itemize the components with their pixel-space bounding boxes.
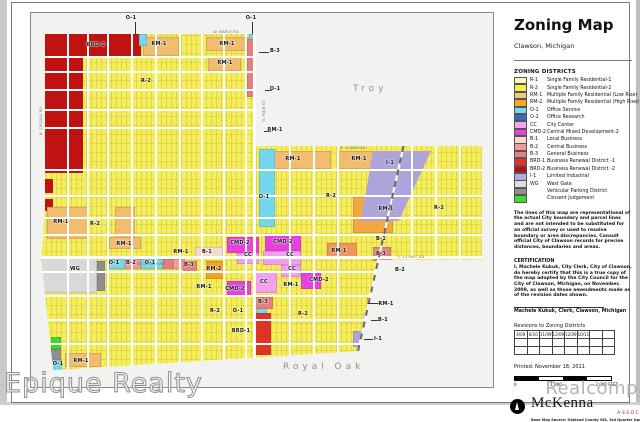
legend-swatch: [514, 107, 527, 115]
legend-row: WGWest Gate: [514, 180, 634, 187]
road: [459, 13, 461, 387]
legend-row: B-2Central Business: [514, 144, 634, 151]
leader-line: [252, 22, 253, 34]
zone-label-i-1: I-1: [374, 336, 382, 342]
revisions-heading: Revisions to Zoning Districts: [514, 323, 634, 329]
revision-cell: [527, 347, 540, 355]
legend-swatch: [514, 92, 527, 100]
road-main-st: [253, 13, 256, 387]
leader-line: [368, 303, 380, 304]
legend-swatch: [514, 188, 527, 196]
leader-line: [135, 22, 136, 34]
road: [201, 13, 203, 387]
legend-code: BRD-2: [530, 167, 547, 172]
leader-line: [364, 339, 373, 340]
zone-b2-14mile: [125, 259, 141, 269]
legend-label: Central Mixed Development-2: [547, 130, 619, 135]
page-title: Zoning Map: [514, 16, 634, 34]
revision-cell: [515, 347, 528, 355]
road: [31, 295, 493, 297]
zone-o1: [256, 86, 264, 98]
revision-cell: 6/10: [527, 331, 540, 339]
watermark-realcomp: Realcomp: [545, 378, 638, 399]
disclaimer-text: The lines of this map are representation…: [514, 211, 632, 251]
revision-cell: 11/09: [540, 331, 553, 339]
legend-label: Office Research: [547, 115, 585, 120]
zone-o1-14mile: [141, 259, 163, 269]
road: [31, 169, 493, 171]
revision-cell: [602, 347, 615, 355]
road: [155, 13, 157, 387]
legend-code: I-1: [530, 174, 547, 179]
legend-label: Consent Judgement: [547, 196, 594, 201]
map-info-panel: Zoning Map Clawson, Michigan ZONING DIST…: [504, 12, 634, 392]
legend-code: RM-2: [530, 100, 547, 105]
legend-label: Office Service: [547, 108, 580, 113]
basemap-source: Base Map Source: Oakland County GIS, 3rd…: [531, 418, 640, 422]
road: [245, 13, 247, 387]
legend-row: BRD-1Business Renewal District -1: [514, 158, 634, 165]
legend-heading: ZONING DISTRICTS: [514, 69, 634, 75]
legend-code: CMD-2: [530, 130, 547, 135]
road-label: N. MAIN ST: [262, 100, 266, 121]
legend-swatch: [514, 129, 527, 137]
legend-row: B-1Local Business: [514, 136, 634, 143]
zone-label-rm-1: RM-1: [267, 127, 282, 133]
divider: [514, 60, 632, 61]
legend-row: RM-2Multiple Family Residential (High Ri…: [514, 99, 634, 106]
zone-label-o-1: O-1: [246, 15, 257, 21]
legend-row: Vehicular Parking District: [514, 188, 634, 195]
zone-cc: [253, 271, 277, 293]
neighbor-label-troy: Troy: [353, 84, 388, 94]
revision-cell: 12/09: [565, 331, 578, 339]
legend-row: O-2Office Research: [514, 114, 634, 121]
zone-parking: [97, 261, 105, 291]
zone-label-o-1: O-1: [270, 86, 281, 92]
road: [223, 13, 225, 387]
road: [131, 13, 133, 387]
road: [67, 13, 69, 387]
revision-cell: [590, 339, 603, 347]
revision-cell: [602, 331, 615, 339]
watermark-epique-realty: Epique Realty: [4, 368, 203, 399]
legend-row: Consent Judgement: [514, 195, 634, 202]
legend-label: City Center: [547, 123, 574, 128]
signature-name: Machele Kukuk, Clerk, Clawson, Michigan: [514, 309, 634, 314]
zoning-legend: R-1Single Family Residential-1R-2Single …: [514, 77, 634, 203]
zone-b2-rail: [381, 263, 395, 275]
legend-swatch: [514, 136, 527, 144]
legend-swatch: [514, 77, 527, 85]
page-edge-right: [636, 0, 640, 405]
revision-cell: [577, 347, 590, 355]
road: [31, 71, 493, 73]
revision-cell: [590, 347, 603, 355]
legend-label: Single Family Residential-2: [547, 86, 611, 91]
leader-line: [264, 131, 271, 132]
revision-cell: [565, 339, 578, 347]
legend-swatch: [514, 84, 527, 92]
road: [87, 13, 89, 387]
revision-cell: [515, 339, 528, 347]
road: [435, 13, 437, 387]
revision-cell: 4/09: [515, 331, 528, 339]
zone-cmd2: [301, 271, 321, 289]
road: [31, 109, 493, 111]
legend-code: R-1: [530, 78, 547, 83]
zone-cmd2: [265, 235, 301, 251]
legend-label: General Business: [547, 152, 589, 157]
legend-row: O-1Office Service: [514, 107, 634, 114]
legend-swatch: [514, 180, 527, 188]
legend-row: I-1Limited Industrial: [514, 173, 634, 180]
legend-swatch: [514, 143, 527, 151]
legend-label: Vehicular Parking District: [547, 189, 607, 194]
legend-label: Business Renewal District -2: [547, 167, 615, 172]
legend-label: West Gate: [547, 182, 572, 187]
zone-i1: [361, 151, 431, 221]
legend-row: RM-1Multiple Family Residential (Low Ris…: [514, 92, 634, 99]
zone-o1-main: [259, 149, 275, 227]
map-frame: BRD-2O-1O-1RM-1RM-1RM-1B-3O-1R-2RM-1R-2R…: [30, 12, 494, 388]
legend-label: Single Family Residential-1: [547, 78, 611, 83]
firm-subname: ASSOCIATES: [531, 411, 640, 416]
legend-swatch: [514, 114, 527, 122]
road: [31, 217, 493, 219]
revision-cell: [565, 347, 578, 355]
zone-label-b-1: B-1: [378, 317, 388, 323]
neighbor-label-royal-oak: Royal Oak: [283, 362, 364, 372]
legend-code: B-2: [530, 145, 547, 150]
zone-brd2-north: [45, 34, 141, 56]
legend-row: BRD-2Business Renewal District -2: [514, 166, 634, 173]
firm-block: McKenna ASSOCIATES Base Map Source: Oakl…: [510, 396, 634, 422]
revision-cell: [540, 347, 553, 355]
legend-row: B-3General Business: [514, 151, 634, 158]
legend-swatch: [514, 151, 527, 159]
legend-label: Multiple Family Residential (High Rise): [547, 100, 639, 105]
road-14-mile: [31, 256, 493, 259]
legend-row: CMD-2Central Mixed Development-2: [514, 129, 634, 136]
zone-label-b-2: B-2: [395, 267, 405, 273]
road: [313, 13, 315, 387]
legend-swatch: [514, 99, 527, 107]
legend-label: Central Business: [547, 145, 587, 150]
certification-text: I, Machele Kukuk, City Clerk, City of Cl…: [514, 265, 632, 299]
road: [31, 127, 493, 129]
legend-swatch: [514, 158, 527, 166]
mckenna-logo-icon: [510, 399, 525, 414]
zone-label-o-1: O-1: [126, 15, 137, 21]
revision-cell: [540, 339, 553, 347]
zone-rm1-south: [65, 353, 101, 367]
leader-line: [259, 52, 269, 53]
legend-code: WG: [530, 182, 547, 187]
zone-label-rm-1: RM-1: [378, 301, 393, 307]
zone-b3-south: [255, 297, 273, 309]
zone-b3-14mile: [163, 259, 173, 269]
legend-code: B-3: [530, 152, 547, 157]
zone-label-b-3: B-3: [270, 48, 280, 54]
revision-cell: [552, 347, 565, 355]
legend-swatch: [514, 195, 527, 203]
road: [31, 56, 493, 58]
zoning-map-sheet: BRD-2O-1O-1RM-1RM-1RM-1B-3O-1R-2RM-1R-2R…: [11, 2, 630, 403]
legend-code: CC: [530, 123, 547, 128]
road: [107, 13, 109, 387]
zone-rm1: [206, 37, 249, 51]
certification-heading: CERTIFICATION: [514, 259, 634, 264]
zone-o1: [139, 34, 147, 46]
road: [411, 13, 413, 387]
revision-cell: 10/11: [577, 331, 590, 339]
road-label: N. CROOKS RD: [39, 107, 43, 135]
road: [179, 13, 181, 387]
revision-cell: [527, 339, 540, 347]
legend-code: O-1: [530, 108, 547, 113]
leader-line: [265, 90, 272, 91]
legend-code: R-2: [530, 86, 547, 91]
city-body: [31, 13, 493, 387]
legend-label: Multiple Family Residential (Low Rise): [547, 93, 637, 98]
zone-rm1: [143, 37, 179, 56]
road: [31, 343, 493, 345]
legend-label: Local Business: [547, 137, 582, 142]
legend-label: Business Renewal District -1: [547, 159, 615, 164]
page-edge-left: [0, 0, 7, 405]
revisions-table: 4/096/1011/0912/0912/0910/11: [514, 330, 615, 355]
road: [31, 319, 493, 321]
road: [289, 13, 291, 387]
page-subtitle: Clawson, Michigan: [514, 42, 634, 50]
revision-cell: [577, 339, 590, 347]
legend-label: Limited Industrial: [547, 174, 589, 179]
legend-code: B-1: [530, 137, 547, 142]
legend-code: RM-1: [530, 93, 547, 98]
revision-cell: [590, 331, 603, 339]
revision-cell: [552, 339, 565, 347]
revision-cell: [602, 339, 615, 347]
road-label: W. MAPLE RD: [213, 30, 238, 34]
zone-o1-14mile: [109, 259, 125, 269]
road: [31, 271, 493, 273]
revision-cell: 12/09: [552, 331, 565, 339]
legend-row: R-2Single Family Residential-2: [514, 84, 634, 91]
road: [31, 89, 493, 91]
scale-start: 0: [514, 382, 517, 387]
road: [31, 234, 493, 236]
zone-rm1: [109, 237, 141, 249]
zone-brd2-parcel: [45, 179, 53, 193]
legend-code: BRD-1: [530, 159, 547, 164]
legend-swatch: [514, 173, 527, 181]
legend-row: CCCity Center: [514, 121, 634, 128]
legend-row: R-1Single Family Residential-1: [514, 77, 634, 84]
legend-swatch: [514, 166, 527, 174]
legend-swatch: [514, 121, 527, 129]
legend-code: O-2: [530, 115, 547, 120]
leader-line: [371, 320, 379, 321]
printed-date: Printed: November 18, 2011: [514, 364, 634, 370]
road: [337, 13, 339, 387]
road: [31, 195, 493, 197]
zone-parking: [51, 349, 61, 360]
